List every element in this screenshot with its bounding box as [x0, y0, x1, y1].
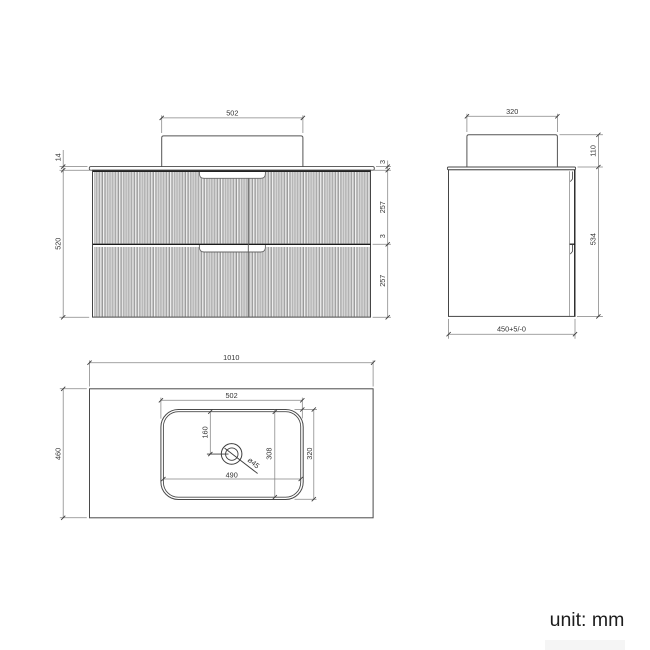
svg-text:1010: 1010 [223, 353, 239, 362]
svg-text:320: 320 [506, 107, 518, 116]
svg-text:257: 257 [378, 275, 387, 287]
svg-text:460: 460 [54, 448, 63, 460]
svg-text:14: 14 [54, 153, 63, 161]
svg-text:502: 502 [226, 108, 238, 117]
svg-text:520: 520 [54, 238, 63, 250]
svg-text:502: 502 [226, 391, 238, 400]
svg-text:450+5/-0: 450+5/-0 [497, 325, 526, 334]
svg-text:3: 3 [378, 234, 387, 238]
svg-text:320: 320 [305, 448, 314, 460]
svg-text:257: 257 [378, 201, 387, 213]
svg-text:3: 3 [378, 160, 387, 164]
svg-text:160: 160 [200, 426, 209, 438]
svg-text:110: 110 [588, 145, 597, 157]
svg-text:308: 308 [264, 448, 273, 460]
svg-text:unit: mm: unit: mm [550, 609, 625, 631]
svg-text:490: 490 [226, 470, 238, 479]
svg-text:534: 534 [588, 233, 597, 245]
